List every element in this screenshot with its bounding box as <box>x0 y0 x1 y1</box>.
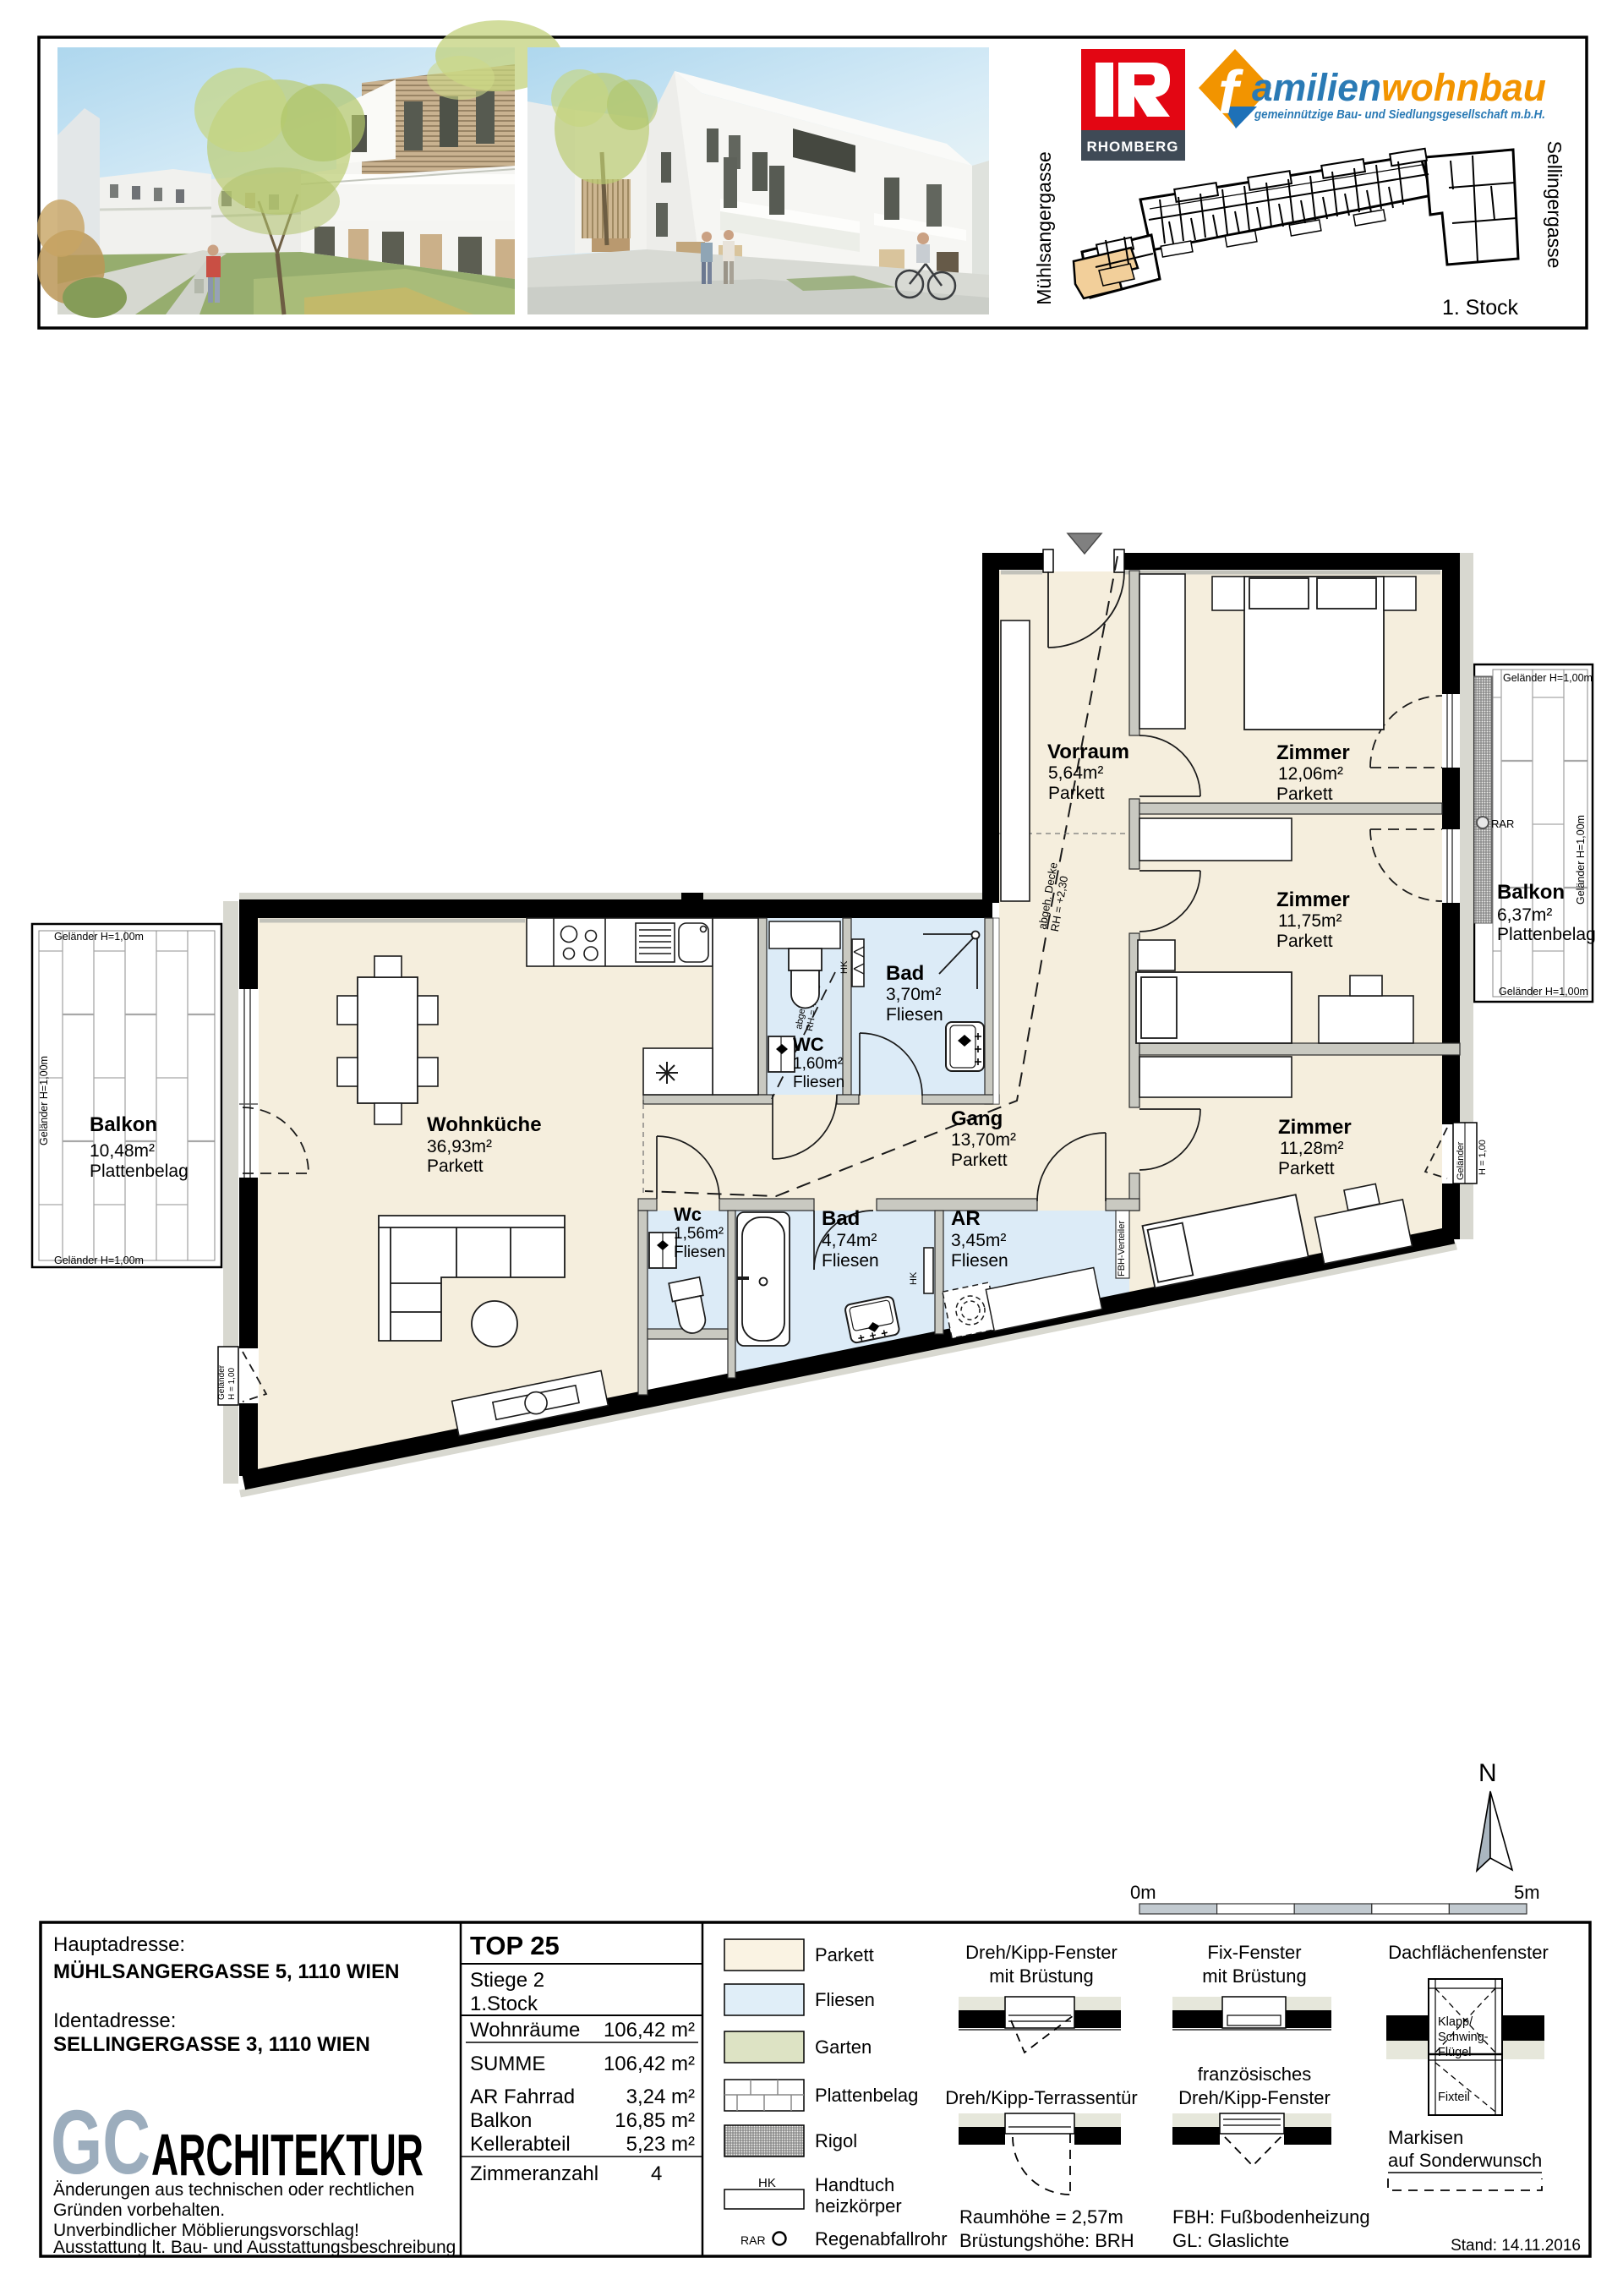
svg-text:mit Brüstung: mit Brüstung <box>989 1965 1094 1987</box>
svg-text:1. Stock: 1. Stock <box>1442 296 1519 320</box>
svg-text:Kellerabteil: Kellerabteil <box>470 2133 571 2156</box>
svg-text:Parkett: Parkett <box>1278 1159 1335 1178</box>
svg-text:Zimmeranzahl: Zimmeranzahl <box>470 2162 598 2185</box>
svg-text:Klapp/: Klapp/ <box>1438 2015 1473 2029</box>
svg-text:GC: GC <box>51 2091 150 2193</box>
svg-text:3,24 m²: 3,24 m² <box>626 2086 695 2108</box>
svg-text:Fliesen: Fliesen <box>886 1005 943 1025</box>
svg-text:mit Brüstung: mit Brüstung <box>1202 1965 1307 1987</box>
svg-text:Geländer H=1,00m: Geländer H=1,00m <box>54 1255 144 1266</box>
svg-text:16,85 m²: 16,85 m² <box>615 2109 695 2132</box>
svg-text:Parkett: Parkett <box>1276 932 1333 951</box>
svg-text:heizkörper: heizkörper <box>815 2195 902 2217</box>
svg-text:Schwing-: Schwing- <box>1438 2031 1489 2044</box>
svg-text:Raumhöhe = 2,57m: Raumhöhe = 2,57m <box>959 2206 1123 2228</box>
svg-text:AR Fahrrad: AR Fahrrad <box>470 2086 575 2108</box>
svg-text:FBH: Fußbodenheizung: FBH: Fußbodenheizung <box>1172 2206 1370 2228</box>
svg-text:HK: HK <box>909 1271 919 1285</box>
svg-text:Fliesen: Fliesen <box>793 1074 844 1091</box>
svg-text:11,28m²: 11,28m² <box>1280 1139 1343 1158</box>
svg-text:Flügel: Flügel <box>1438 2046 1472 2059</box>
svg-text:Parkett: Parkett <box>1048 784 1105 803</box>
svg-text:Geländer H=1,00m: Geländer H=1,00m <box>1499 986 1588 998</box>
svg-text:Bad: Bad <box>822 1207 860 1230</box>
svg-text:Wohnküche: Wohnküche <box>427 1113 542 1136</box>
svg-text:ARCHITEKTUR: ARCHITEKTUR <box>151 2122 424 2188</box>
svg-text:RHOMBERG: RHOMBERG <box>1086 139 1178 155</box>
svg-text:Garten: Garten <box>815 2036 872 2058</box>
svg-text:Rigol: Rigol <box>815 2130 857 2151</box>
svg-text:3,45m²: 3,45m² <box>951 1231 1006 1250</box>
svg-text:Balkon: Balkon <box>1497 881 1565 904</box>
svg-text:auf Sonderwunsch: auf Sonderwunsch <box>1388 2150 1542 2171</box>
svg-text:5,23 m²: 5,23 m² <box>626 2133 695 2156</box>
svg-text:Balkon: Balkon <box>470 2109 532 2132</box>
svg-text:SUMME: SUMME <box>470 2053 545 2075</box>
svg-text:Geländer: Geländer <box>217 1364 227 1400</box>
svg-text:Stiege 2: Stiege 2 <box>470 1969 544 1992</box>
svg-text:4: 4 <box>651 2162 662 2185</box>
svg-text:Geländer H=1,00m: Geländer H=1,00m <box>1503 672 1593 684</box>
svg-text:Dreh/Kipp-Fenster: Dreh/Kipp-Fenster <box>965 1942 1118 1963</box>
svg-text:Zimmer: Zimmer <box>1278 1116 1352 1139</box>
svg-text:Parkett: Parkett <box>427 1156 484 1176</box>
svg-text:Dachflächenfenster: Dachflächenfenster <box>1388 1942 1549 1963</box>
svg-text:amilienwohnbau: amilienwohnbau <box>1252 66 1546 109</box>
svg-text:Fix-Fenster: Fix-Fenster <box>1207 1942 1301 1963</box>
svg-text:Gründen vorbehalten.: Gründen vorbehalten. <box>53 2200 225 2220</box>
svg-text:gemeinnützige Bau- und Siedlun: gemeinnützige Bau- und Siedlungsgesellsc… <box>1254 108 1545 122</box>
svg-text:Fliesen: Fliesen <box>815 1989 875 2010</box>
svg-text:Geländer H=1,00m: Geländer H=1,00m <box>38 1056 50 1145</box>
svg-text:36,93m²: 36,93m² <box>427 1137 492 1156</box>
svg-text:Mühlsangergasse: Mühlsangergasse <box>1033 151 1055 305</box>
svg-text:106,42 m²: 106,42 m² <box>604 2019 695 2042</box>
svg-text:0m: 0m <box>1130 1882 1156 1903</box>
svg-text:TOP 25: TOP 25 <box>470 1931 560 1960</box>
svg-text:Handtuch: Handtuch <box>815 2174 894 2195</box>
svg-text:Geländer: Geländer <box>1456 1141 1466 1180</box>
svg-text:RAR: RAR <box>1491 817 1514 830</box>
svg-text:französisches: französisches <box>1198 2064 1312 2085</box>
svg-text:Fixteil: Fixteil <box>1438 2091 1470 2104</box>
svg-text:Markisen: Markisen <box>1388 2127 1463 2148</box>
svg-text:Geländer H=1,00m: Geländer H=1,00m <box>54 931 144 943</box>
svg-text:3,70m²: 3,70m² <box>886 985 941 1004</box>
svg-text:HK: HK <box>758 2176 776 2190</box>
svg-text:H = 1,00: H = 1,00 <box>1478 1140 1488 1175</box>
svg-text:13,70m²: 13,70m² <box>951 1130 1016 1150</box>
svg-text:FBH-Verteiler: FBH-Verteiler <box>1117 1221 1127 1276</box>
svg-text:Brüstungshöhe: BRH: Brüstungshöhe: BRH <box>959 2230 1134 2251</box>
svg-text:12,06m²: 12,06m² <box>1278 764 1343 784</box>
svg-text:SELLINGERGASSE 3, 1110 WIEN: SELLINGERGASSE 3, 1110 WIEN <box>53 2033 370 2056</box>
svg-text:Gang: Gang <box>951 1107 1003 1130</box>
svg-text:MÜHLSANGERGASSE 5, 1110 WIEN: MÜHLSANGERGASSE 5, 1110 WIEN <box>53 1960 399 1983</box>
svg-text:AR: AR <box>951 1207 981 1230</box>
svg-text:4,74m²: 4,74m² <box>822 1231 877 1250</box>
svg-text:Vorraum: Vorraum <box>1047 741 1129 763</box>
svg-text:5,64m²: 5,64m² <box>1048 763 1103 783</box>
svg-text:Parkett: Parkett <box>951 1151 1008 1170</box>
svg-text:H = 1,00: H = 1,00 <box>227 1367 237 1400</box>
svg-text:Plattenbelag: Plattenbelag <box>815 2085 918 2106</box>
svg-text:5m: 5m <box>1514 1882 1540 1903</box>
svg-text:Balkon: Balkon <box>90 1113 157 1136</box>
svg-text:6,37m²: 6,37m² <box>1497 905 1552 925</box>
svg-text:1,56m²: 1,56m² <box>674 1225 724 1243</box>
svg-text:Sellingergasse: Sellingergasse <box>1544 141 1566 269</box>
svg-text:WC: WC <box>793 1034 824 1055</box>
svg-text:106,42 m²: 106,42 m² <box>604 2053 695 2075</box>
svg-text:Plattenbelag: Plattenbelag <box>1497 925 1596 944</box>
svg-text:Fliesen: Fliesen <box>822 1251 879 1271</box>
svg-text:Geländer H=1,00m: Geländer H=1,00m <box>1575 815 1587 905</box>
svg-text:Dreh/Kipp-Terrassentür: Dreh/Kipp-Terrassentür <box>945 2087 1137 2108</box>
svg-text:1,60m²: 1,60m² <box>793 1055 843 1073</box>
svg-text:GL: Glaslichte: GL: Glaslichte <box>1172 2230 1289 2251</box>
svg-text:Parkett: Parkett <box>815 1944 874 1965</box>
svg-text:Änderungen aus technischen ode: Änderungen aus technischen oder rechtlic… <box>53 2180 414 2200</box>
svg-text:Stand: 14.11.2016: Stand: 14.11.2016 <box>1451 2237 1581 2255</box>
svg-text:10,48m²: 10,48m² <box>90 1141 155 1161</box>
svg-text:11,75m²: 11,75m² <box>1278 911 1342 931</box>
svg-text:Wc: Wc <box>674 1204 702 1225</box>
svg-text:RAR: RAR <box>740 2233 766 2247</box>
svg-text:N: N <box>1478 1759 1497 1787</box>
svg-text:Identadresse:: Identadresse: <box>53 2009 176 2032</box>
svg-text:Fliesen: Fliesen <box>951 1251 1008 1271</box>
svg-text:Parkett: Parkett <box>1276 784 1333 804</box>
svg-text:Wohnräume: Wohnräume <box>470 2019 580 2042</box>
svg-text:Regenabfallrohr: Regenabfallrohr <box>815 2228 948 2250</box>
svg-text:Zimmer: Zimmer <box>1276 741 1350 764</box>
svg-text:Dreh/Kipp-Fenster: Dreh/Kipp-Fenster <box>1178 2087 1331 2108</box>
svg-text:HK: HK <box>839 960 850 974</box>
svg-text:Ausstattung lt. Bau- und Ausst: Ausstattung lt. Bau- und Ausstattungsbes… <box>53 2238 456 2257</box>
svg-text:Plattenbelag: Plattenbelag <box>90 1162 189 1181</box>
svg-text:Fliesen: Fliesen <box>674 1244 725 1261</box>
svg-text:Hauptadresse:: Hauptadresse: <box>53 1933 185 1956</box>
svg-text:1.Stock: 1.Stock <box>470 1993 538 2015</box>
svg-text:Bad: Bad <box>886 962 924 985</box>
svg-text:Zimmer: Zimmer <box>1276 888 1350 911</box>
